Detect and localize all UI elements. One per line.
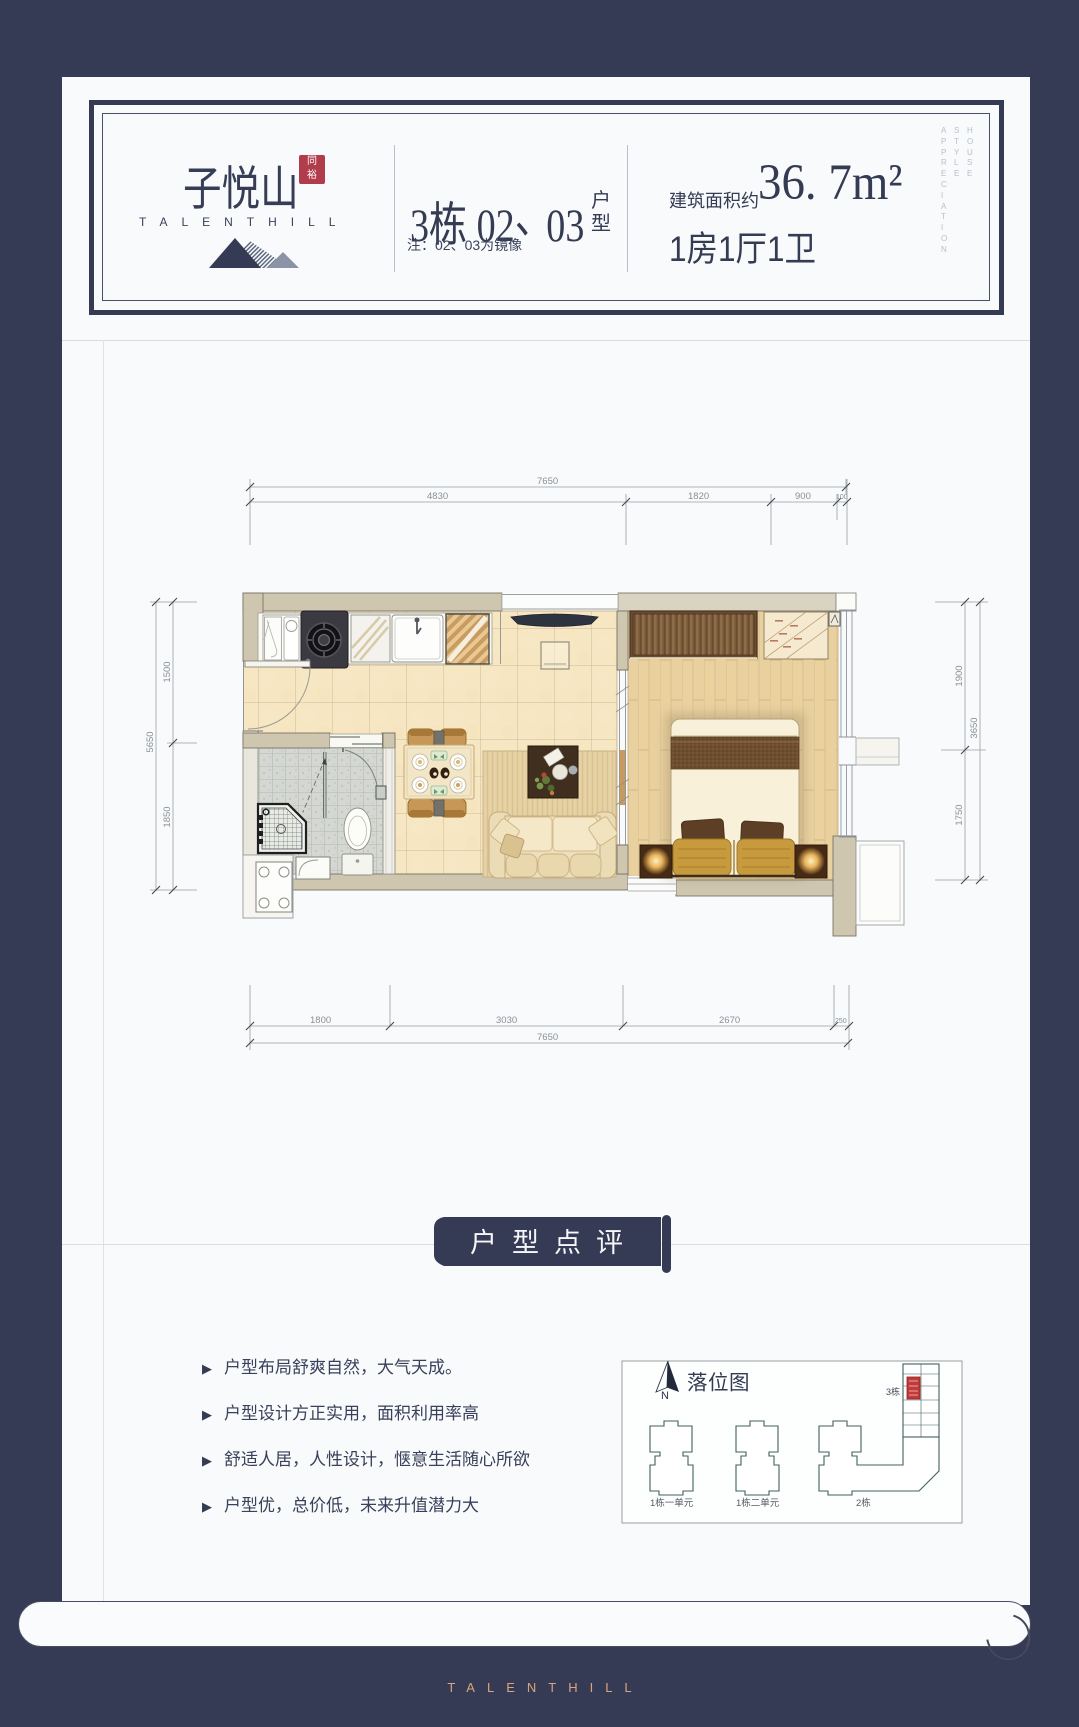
svg-text:2670: 2670 [719, 1015, 740, 1026]
svg-text:5650: 5650 [145, 731, 156, 752]
svg-text:3栋: 3栋 [886, 1386, 900, 1397]
svg-text:落位图: 落位图 [687, 1372, 750, 1395]
svg-text:1900: 1900 [954, 665, 965, 686]
svg-text:2栋: 2栋 [856, 1497, 871, 1509]
svg-text:1820: 1820 [688, 491, 709, 502]
svg-text:N: N [661, 1390, 669, 1402]
svg-text:250: 250 [835, 1018, 847, 1025]
svg-text:1750: 1750 [954, 804, 965, 825]
svg-text:900: 900 [795, 491, 811, 502]
svg-text:1500: 1500 [162, 661, 173, 682]
svg-text:1850: 1850 [162, 806, 173, 827]
svg-text:1栋二单元: 1栋二单元 [736, 1497, 780, 1509]
svg-text:3030: 3030 [496, 1015, 517, 1026]
svg-text:1800: 1800 [310, 1015, 331, 1026]
svg-text:4830: 4830 [427, 491, 448, 502]
svg-text:7650: 7650 [537, 1032, 558, 1043]
svg-text:1栋一单元: 1栋一单元 [650, 1497, 694, 1509]
svg-text:7650: 7650 [537, 476, 558, 487]
svg-text:100: 100 [836, 494, 848, 501]
svg-text:3650: 3650 [969, 717, 980, 738]
